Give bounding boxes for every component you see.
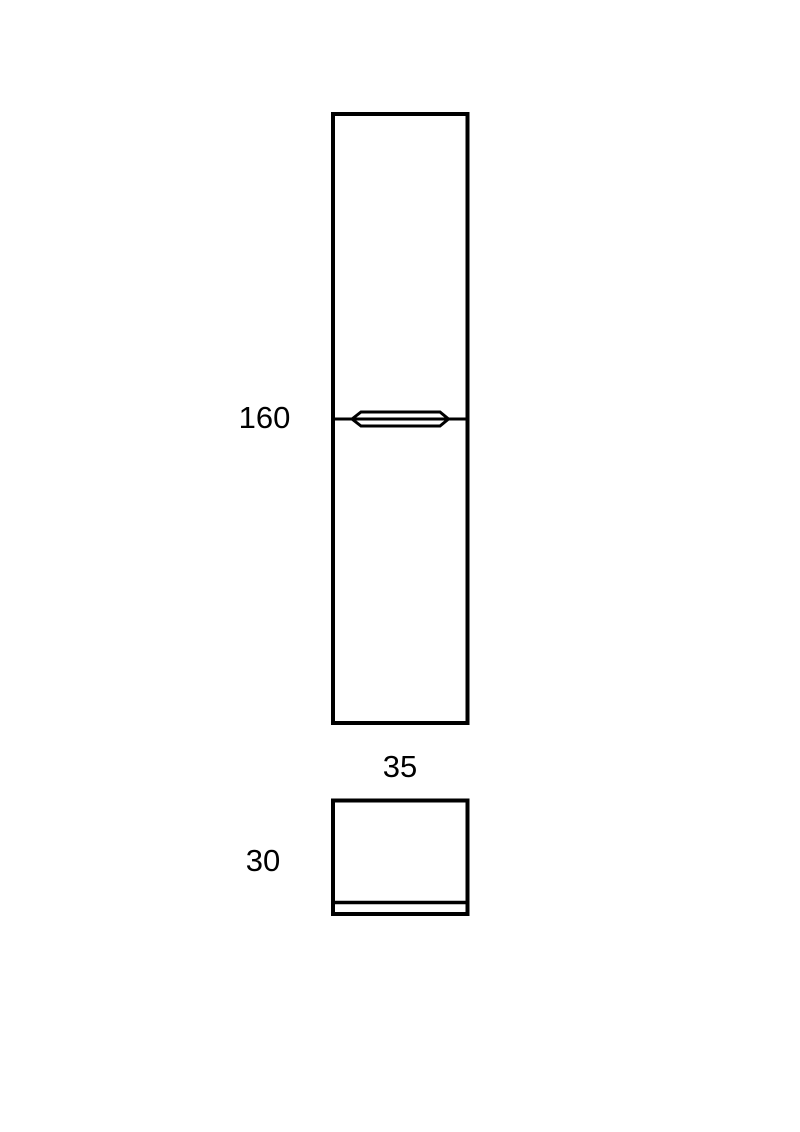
svg-text:30: 30 xyxy=(246,843,280,878)
svg-text:160: 160 xyxy=(239,400,291,435)
svg-text:35: 35 xyxy=(383,749,417,784)
